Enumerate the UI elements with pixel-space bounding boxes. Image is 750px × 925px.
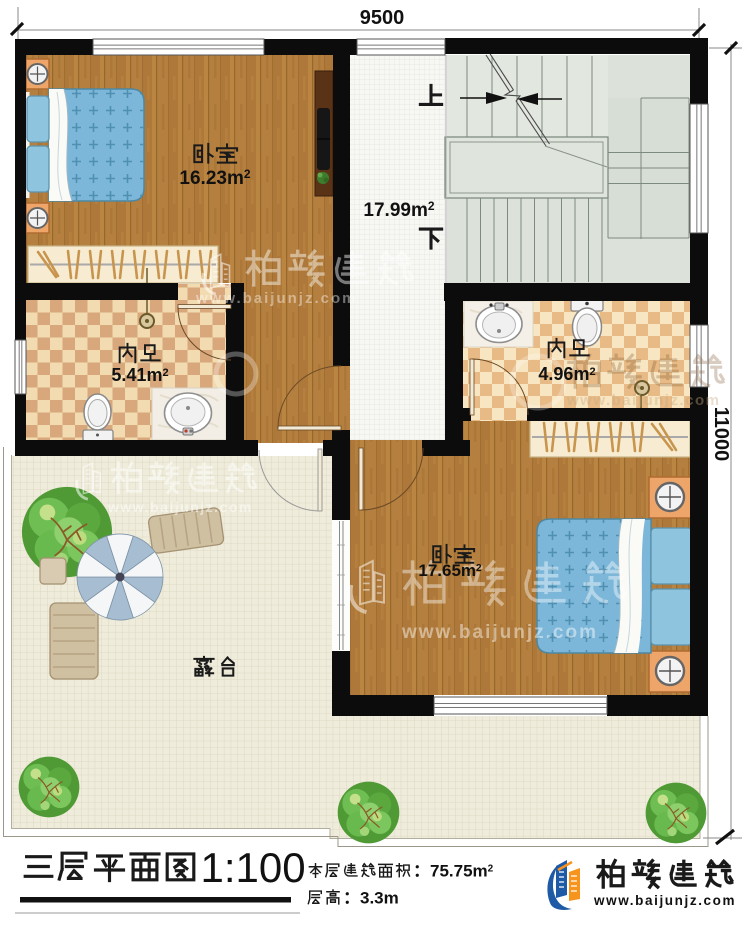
- svg-text:11000: 11000: [710, 407, 732, 462]
- svg-text:5.41m2: 5.41m2: [111, 365, 168, 385]
- svg-text:17.99m2: 17.99m2: [363, 199, 434, 221]
- svg-text:16.23m2: 16.23m2: [179, 167, 250, 189]
- svg-text:www.baijunjz.com: www.baijunjz.com: [593, 893, 736, 908]
- svg-text:4.96m2: 4.96m2: [538, 364, 595, 384]
- svg-text:1:100: 1:100: [201, 844, 306, 891]
- svg-text:17.65m2: 17.65m2: [418, 561, 482, 580]
- svg-text:：75.75m2: ：75.75m2: [413, 862, 494, 881]
- svg-text:：3.3m: ：3.3m: [343, 889, 399, 908]
- svg-text:www.baijunjz.com: www.baijunjz.com: [401, 622, 598, 643]
- svg-text:www.baijunjz.com: www.baijunjz.com: [107, 499, 253, 515]
- svg-text:www.baijunjz.com: www.baijunjz.com: [195, 290, 357, 307]
- svg-text:www.baijunjz.com: www.baijunjz.com: [566, 392, 720, 409]
- svg-text:9500: 9500: [360, 7, 405, 29]
